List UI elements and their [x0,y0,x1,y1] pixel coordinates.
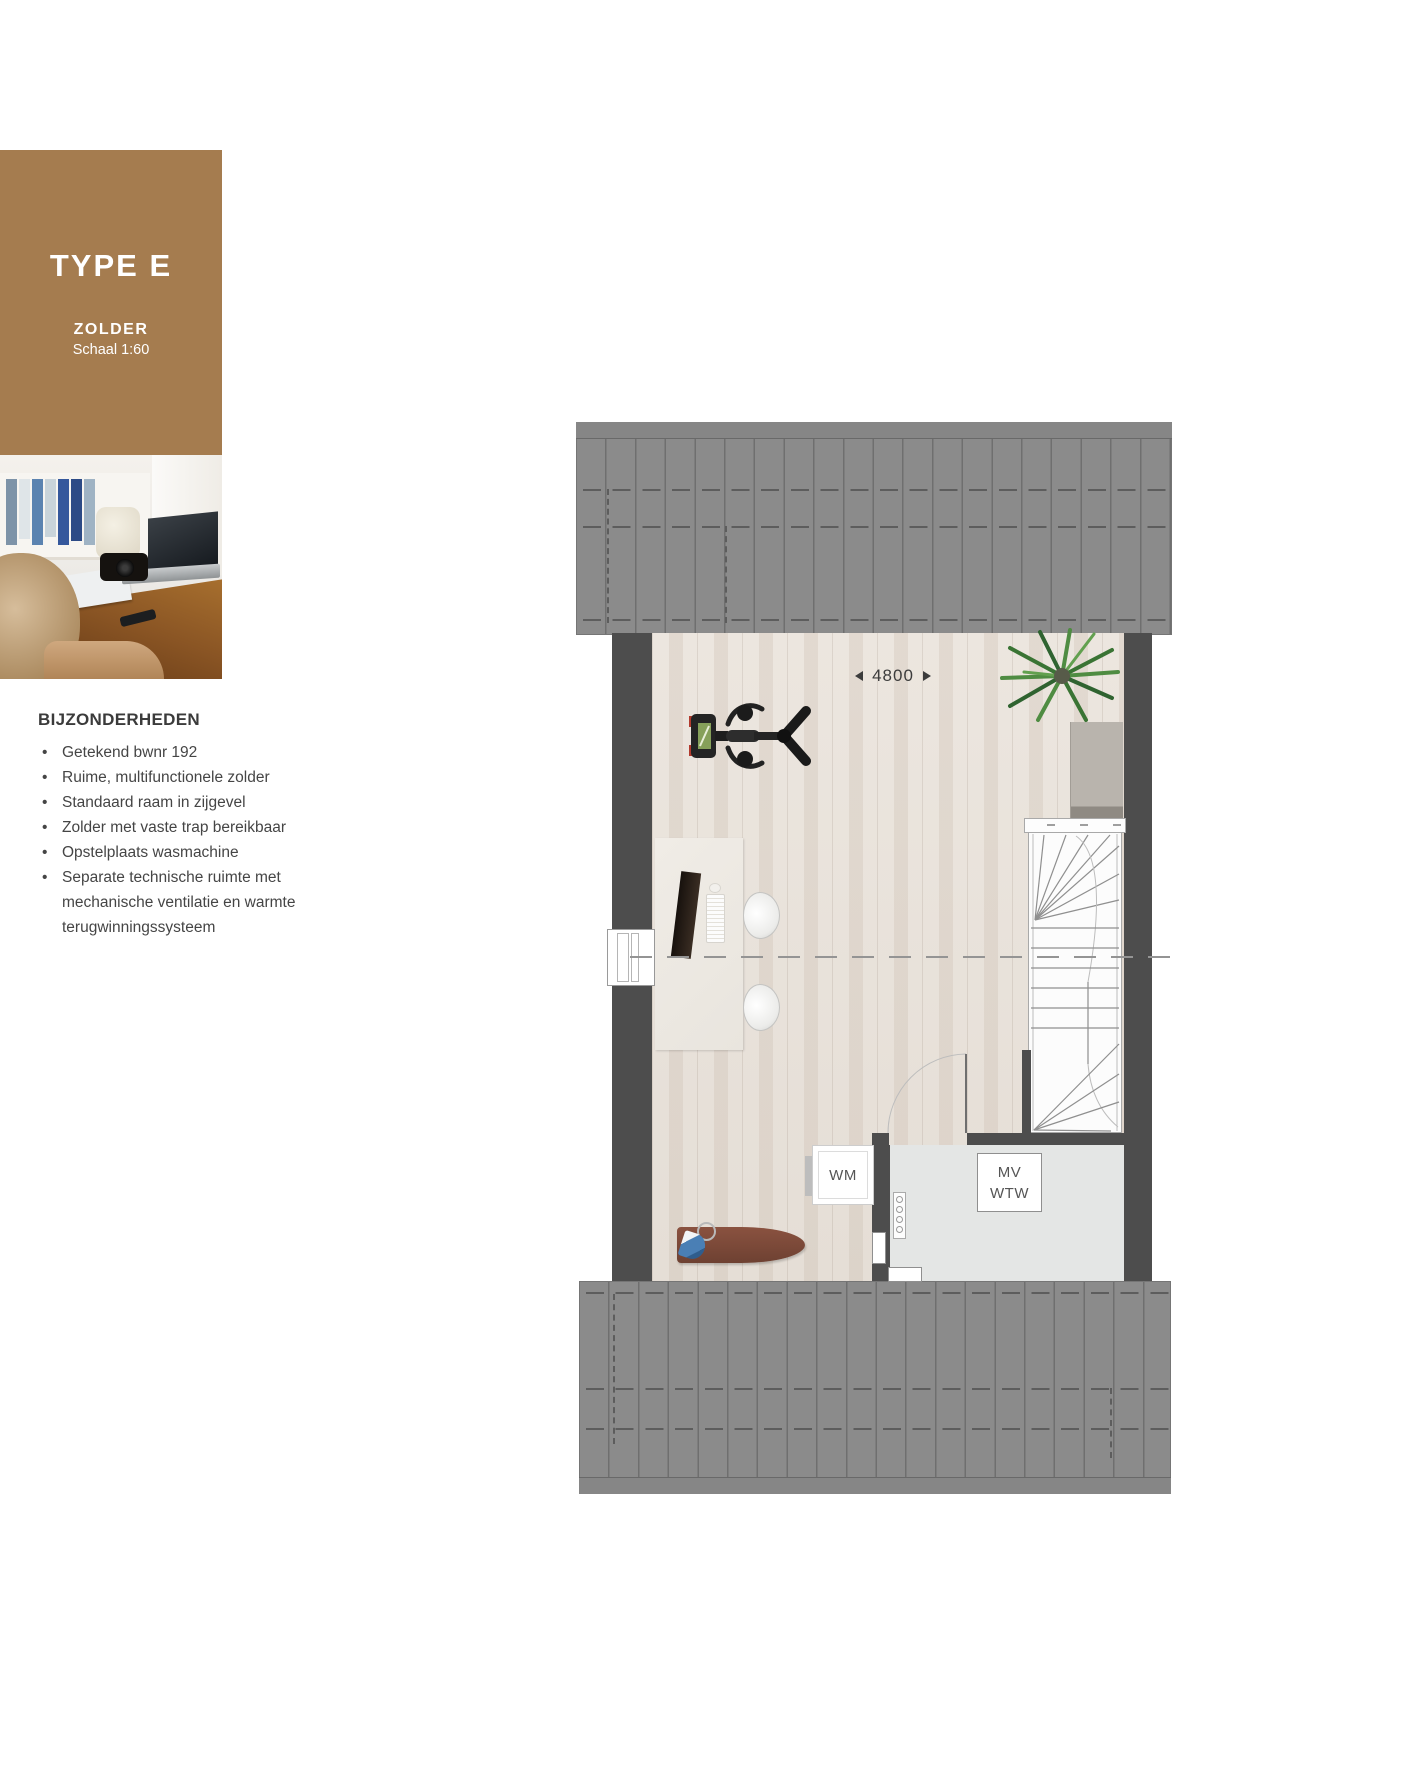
photo-book [19,479,30,539]
photo-book [6,479,17,545]
roof-hatch [577,526,1171,528]
roof-top [576,422,1172,635]
detail-text: Getekend bwnr 192 [62,744,197,761]
mouse [709,883,721,893]
photo-chair [44,641,164,679]
section-dashed-line [630,956,1180,958]
potted-plant [1000,628,1120,724]
stair-side-wall [1022,1050,1031,1133]
vent-duct [872,1232,886,1264]
detail-text: Ruime, multifunctionele zolder [62,769,270,786]
wm-label: WM [829,1167,857,1184]
exercise-bike [688,698,828,774]
dimension-arrow-right-icon [923,671,931,681]
scale-label: Schaal 1:60 [0,342,222,358]
roof-ridge [576,422,1172,439]
meter-panel [893,1192,906,1239]
photo-book [32,479,43,545]
roof-hatch [580,1292,1170,1294]
keyboard [706,894,725,943]
roof-bottom [579,1281,1171,1494]
photo-book [58,479,69,545]
photo-book [71,479,82,541]
detail-item: Ruime, multifunctionele zolder [38,765,306,790]
cabinet [1070,722,1123,818]
roof-dash-line [613,1294,615,1444]
dimension-arrow-left-icon [855,671,863,681]
details-heading: BIJZONDERHEDEN [38,710,306,730]
window-frame [617,933,629,982]
desk [655,838,743,1050]
detail-text: Standaard raam in zijgevel [62,794,246,811]
roof-hatch [580,1428,1170,1430]
detail-item: Standaard raam in zijgevel [38,790,306,815]
roof-ridge [579,1477,1171,1494]
dimension-label: 4800 [843,665,943,687]
washing-machine: WM [812,1145,874,1205]
spiral-staircase [1028,832,1122,1133]
vent-duct [888,1267,922,1282]
brochure-page: TYPE E ZOLDER Schaal 1:60 BIJZONDERHEDEN… [0,0,1417,1772]
stair-landing [1024,818,1126,833]
wtw-label: WTW [990,1185,1029,1202]
roof-dash-line [725,526,727,623]
door-swing-arc [888,1054,966,1133]
roof-hatch [577,489,1171,491]
photo-book [84,479,95,545]
detail-text: Separate technische ruimte met mechanisc… [62,869,295,936]
detail-item: Zolder met vaste trap bereikbaar [38,815,306,840]
detail-text: Zolder met vaste trap bereikbaar [62,819,286,836]
page-title: TYPE E [0,248,222,284]
roof-hatch [580,1388,1170,1390]
photo-vase [96,507,140,559]
details-list: Getekend bwnr 192 Ruime, multifunctionel… [38,740,306,940]
tech-room-wall [967,1133,1124,1145]
details-section: BIJZONDERHEDEN Getekend bwnr 192 Ruime, … [38,710,306,940]
dimension-value: 4800 [872,666,914,686]
roof-dash-line [1110,1388,1112,1458]
detail-text: Opstelplaats wasmachine [62,844,239,861]
photo-camera-lens [116,559,134,577]
detail-item: Opstelplaats wasmachine [38,840,306,865]
floor-label: ZOLDER [0,321,222,339]
detail-item: Separate technische ruimte met mechanisc… [38,865,306,940]
type-card: TYPE E ZOLDER Schaal 1:60 [0,150,222,455]
detail-item: Getekend bwnr 192 [38,740,306,765]
wm-connector [805,1156,812,1196]
roof-dash-line [607,489,609,623]
mv-wtw-unit: MV WTW [977,1153,1042,1212]
mv-label: MV [998,1164,1022,1181]
tech-room-door [880,1045,980,1145]
photo-book [45,479,56,537]
office-photo [0,455,222,679]
roof-hatch [577,619,1171,621]
